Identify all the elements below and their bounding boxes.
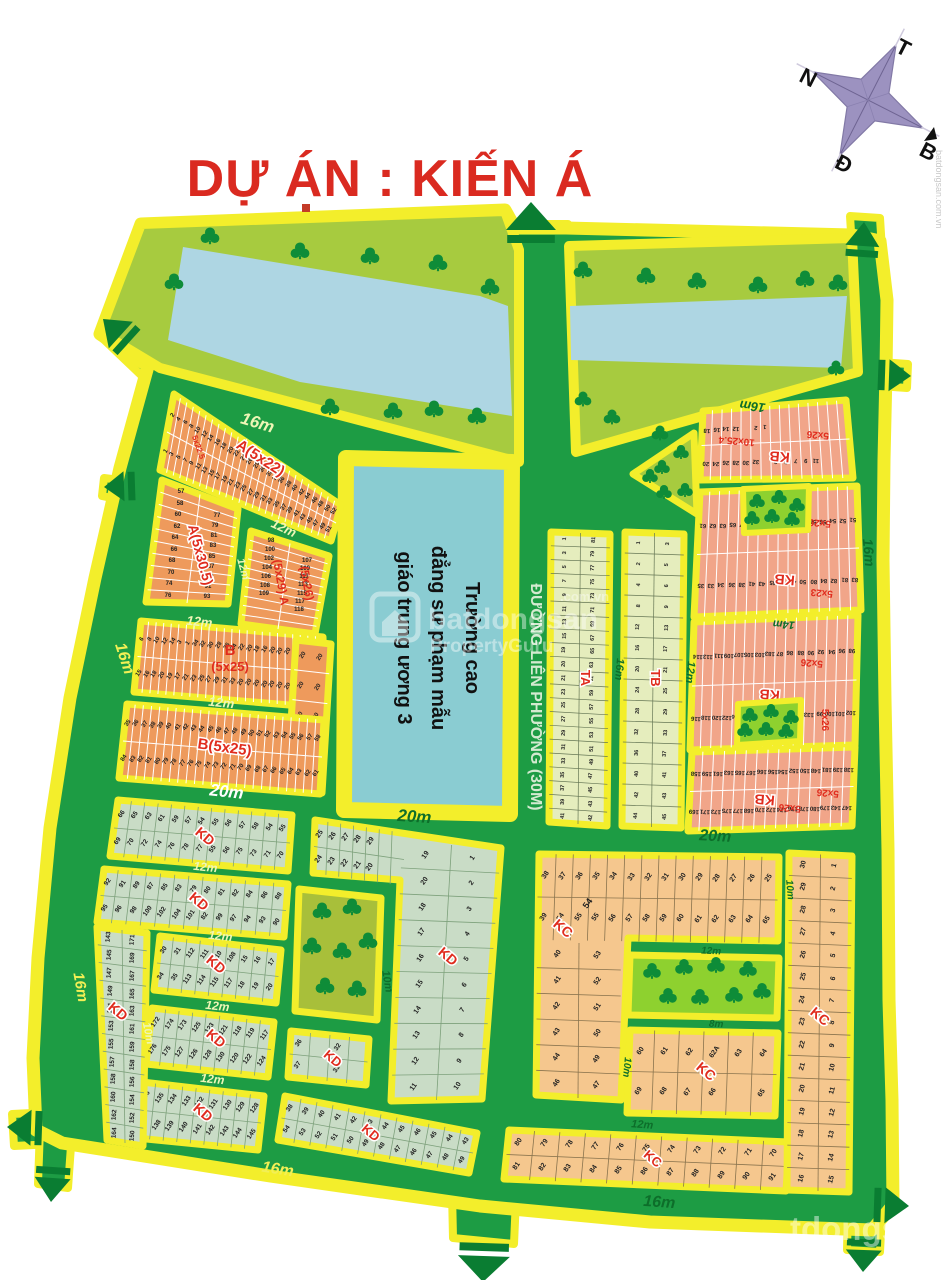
svg-text:33: 33 — [561, 758, 568, 765]
svg-text:156: 156 — [767, 768, 778, 775]
svg-text:16m: 16m — [738, 397, 766, 415]
svg-text:16m: 16m — [860, 538, 878, 567]
svg-text:63: 63 — [589, 662, 596, 669]
svg-text:14: 14 — [722, 425, 730, 432]
svg-text:47: 47 — [588, 773, 595, 780]
svg-text:158: 158 — [110, 1073, 118, 1085]
svg-text:42: 42 — [588, 815, 595, 822]
svg-text:21: 21 — [561, 675, 568, 682]
svg-text:109: 109 — [259, 591, 270, 597]
svg-text:5x23: 5x23 — [810, 586, 834, 599]
svg-text:5x26: 5x26 — [819, 709, 830, 732]
svg-text:152: 152 — [788, 767, 799, 774]
svg-text:39: 39 — [560, 799, 567, 806]
svg-text:32: 32 — [634, 729, 641, 736]
svg-text:17: 17 — [663, 646, 670, 653]
svg-text:106: 106 — [261, 574, 272, 580]
svg-text:149: 149 — [107, 985, 115, 997]
svg-text:81: 81 — [841, 576, 849, 583]
svg-text:25: 25 — [561, 702, 568, 709]
svg-text:8m: 8m — [709, 1019, 724, 1031]
svg-text:173: 173 — [710, 808, 721, 815]
svg-text:55: 55 — [589, 718, 596, 725]
svg-text:2: 2 — [636, 562, 642, 566]
svg-text:153: 153 — [108, 1020, 116, 1032]
svg-text:5x26: 5x26 — [816, 786, 840, 799]
svg-text:28: 28 — [635, 708, 642, 715]
svg-text:70: 70 — [168, 570, 175, 576]
svg-text:150: 150 — [129, 1130, 137, 1142]
svg-text:59: 59 — [589, 690, 596, 697]
svg-text:116: 116 — [690, 715, 701, 722]
svg-text:107: 107 — [302, 558, 313, 564]
svg-text:12m: 12m — [200, 1071, 226, 1087]
svg-text:TA: TA — [578, 670, 593, 687]
svg-text:51: 51 — [589, 746, 596, 753]
svg-text:10m: 10m — [620, 1057, 633, 1078]
svg-text:19: 19 — [561, 647, 568, 654]
svg-text:53: 53 — [589, 732, 596, 739]
svg-text:65: 65 — [590, 648, 597, 655]
svg-text:PropertyGuru: PropertyGuru — [430, 636, 554, 657]
svg-text:tdongs: tdongs — [790, 1210, 900, 1247]
svg-text:43: 43 — [588, 801, 595, 808]
svg-text:13: 13 — [664, 625, 671, 632]
svg-text:7: 7 — [562, 579, 568, 583]
svg-text:93: 93 — [204, 594, 211, 600]
svg-text:25: 25 — [663, 688, 670, 695]
svg-text:8: 8 — [636, 604, 642, 608]
svg-text:75: 75 — [590, 579, 597, 586]
svg-text:16: 16 — [713, 426, 721, 433]
svg-text:34: 34 — [717, 581, 725, 588]
svg-text:36: 36 — [728, 581, 736, 588]
svg-text:27: 27 — [561, 716, 568, 723]
svg-text:35: 35 — [560, 772, 567, 779]
svg-text:12m: 12m — [186, 613, 214, 631]
svg-text:84: 84 — [820, 577, 828, 584]
svg-text:12m: 12m — [683, 661, 697, 684]
svg-text:150: 150 — [799, 767, 810, 774]
svg-text:DỰ ÁN : KIẾN Á: DỰ ÁN : KIẾN Á — [187, 149, 594, 208]
svg-text:66: 66 — [171, 547, 178, 553]
svg-text:41: 41 — [662, 772, 669, 779]
svg-text:139: 139 — [832, 766, 843, 773]
svg-text:60: 60 — [175, 512, 182, 518]
svg-text:147: 147 — [841, 804, 852, 811]
svg-text:80: 80 — [810, 578, 818, 585]
svg-text:37: 37 — [662, 751, 669, 758]
svg-text:20: 20 — [561, 661, 568, 668]
svg-text:20m: 20m — [698, 827, 732, 846]
svg-text:45: 45 — [662, 814, 669, 821]
svg-text:83: 83 — [210, 543, 217, 549]
svg-text:179: 179 — [819, 804, 830, 811]
svg-text:159: 159 — [129, 1041, 137, 1053]
svg-text:63: 63 — [719, 522, 727, 529]
svg-text:152: 152 — [129, 1112, 137, 1124]
svg-text:49: 49 — [589, 759, 596, 766]
svg-text:154: 154 — [129, 1094, 137, 1106]
svg-text:18: 18 — [703, 427, 711, 434]
svg-text:167: 167 — [745, 769, 756, 776]
svg-text:58: 58 — [177, 501, 184, 507]
svg-text:171: 171 — [129, 934, 137, 946]
svg-text:12m: 12m — [208, 928, 234, 944]
svg-text:12m: 12m — [208, 694, 236, 712]
svg-text:62: 62 — [709, 522, 717, 529]
svg-text:98: 98 — [848, 647, 856, 654]
svg-text:57: 57 — [589, 704, 596, 711]
svg-text:86: 86 — [786, 649, 794, 656]
svg-text:168: 168 — [743, 807, 754, 814]
svg-text:114: 114 — [692, 653, 703, 660]
svg-text:10m: 10m — [783, 879, 796, 900]
svg-text:181: 181 — [821, 766, 832, 773]
svg-text:165: 165 — [734, 769, 745, 776]
svg-text:43: 43 — [662, 793, 669, 800]
svg-text:3: 3 — [665, 542, 671, 546]
svg-text:111: 111 — [713, 652, 723, 659]
svg-text:41: 41 — [748, 580, 756, 587]
svg-text:1: 1 — [636, 541, 642, 545]
svg-text:68: 68 — [169, 558, 176, 564]
svg-text:50: 50 — [799, 578, 807, 585]
svg-text:33: 33 — [707, 582, 715, 589]
svg-text:32: 32 — [752, 458, 760, 465]
svg-text:38: 38 — [738, 581, 746, 588]
svg-text:77: 77 — [214, 513, 221, 519]
svg-text:76: 76 — [165, 593, 172, 599]
svg-text:40: 40 — [634, 771, 641, 778]
svg-text:31: 31 — [561, 744, 568, 751]
svg-text:30: 30 — [742, 459, 750, 466]
svg-text:pertyG: pertyG — [800, 1249, 845, 1265]
svg-text:92: 92 — [817, 648, 825, 655]
svg-text:20: 20 — [702, 460, 710, 467]
svg-text:145: 145 — [106, 949, 114, 961]
svg-text:167: 167 — [129, 970, 137, 982]
svg-text:107: 107 — [733, 651, 744, 658]
svg-text:16: 16 — [635, 645, 642, 652]
svg-text:37: 37 — [560, 785, 567, 792]
svg-text:81: 81 — [211, 533, 218, 539]
svg-text:36: 36 — [634, 750, 641, 757]
svg-text:183: 183 — [764, 650, 775, 657]
svg-text:(5x25): (5x25) — [211, 659, 249, 674]
svg-text:5x26: 5x26 — [808, 516, 832, 529]
svg-text:5x26: 5x26 — [800, 656, 824, 669]
svg-text:158: 158 — [129, 1059, 137, 1071]
svg-text:165: 165 — [129, 988, 137, 1000]
svg-text:61: 61 — [699, 522, 707, 529]
svg-text:57: 57 — [178, 489, 185, 495]
svg-text:20: 20 — [635, 666, 642, 673]
svg-text:65: 65 — [729, 521, 737, 528]
svg-text:batdongsan.com.vn: batdongsan.com.vn — [934, 150, 943, 229]
svg-text:162: 162 — [111, 1109, 119, 1121]
svg-text:177: 177 — [732, 807, 743, 814]
svg-text:94: 94 — [828, 648, 836, 655]
svg-text:79: 79 — [590, 551, 597, 558]
svg-text:138: 138 — [843, 766, 854, 773]
svg-text:133: 133 — [803, 711, 814, 718]
svg-text:64: 64 — [172, 535, 179, 541]
svg-text:5: 5 — [664, 563, 670, 567]
svg-text:103: 103 — [754, 651, 765, 658]
svg-text:88: 88 — [797, 649, 805, 656]
svg-text:51: 51 — [849, 516, 857, 523]
svg-text:12m: 12m — [193, 859, 219, 875]
svg-text:159: 159 — [701, 770, 712, 777]
svg-text:41: 41 — [560, 813, 567, 820]
svg-text:20m: 20m — [396, 806, 432, 827]
svg-text:12: 12 — [635, 624, 642, 631]
svg-text:12m: 12m — [701, 945, 722, 957]
svg-text:28: 28 — [732, 459, 740, 466]
svg-text:12m: 12m — [205, 998, 231, 1014]
svg-text:156: 156 — [129, 1076, 137, 1088]
svg-text:109: 109 — [723, 652, 734, 659]
svg-text:102: 102 — [845, 709, 856, 716]
svg-text:29: 29 — [561, 730, 568, 737]
svg-text:20m: 20m — [208, 780, 245, 803]
svg-text:100: 100 — [265, 547, 276, 553]
svg-text:74: 74 — [166, 581, 173, 587]
svg-text:105: 105 — [743, 651, 754, 658]
svg-text:52: 52 — [839, 517, 847, 524]
svg-text:12: 12 — [732, 425, 740, 432]
svg-text:87: 87 — [776, 650, 784, 657]
svg-text:26: 26 — [722, 459, 730, 466]
svg-text:82: 82 — [830, 577, 838, 584]
svg-text:120: 120 — [711, 714, 722, 721]
svg-text:11: 11 — [812, 457, 820, 464]
svg-text:171: 171 — [699, 808, 710, 815]
svg-text:164: 164 — [111, 1127, 119, 1139]
svg-text:77: 77 — [590, 565, 597, 572]
svg-text:79: 79 — [212, 523, 219, 529]
svg-text:175: 175 — [721, 807, 732, 814]
svg-text:118: 118 — [700, 714, 711, 721]
svg-text:154: 154 — [777, 768, 788, 775]
svg-text:108: 108 — [260, 583, 271, 589]
svg-text:43: 43 — [758, 580, 766, 587]
svg-text:160: 160 — [110, 1091, 118, 1103]
svg-text:169: 169 — [688, 808, 699, 815]
svg-text:161: 161 — [129, 1023, 137, 1035]
svg-text:6: 6 — [664, 584, 670, 588]
svg-text:96: 96 — [838, 647, 846, 654]
svg-text:83: 83 — [851, 576, 859, 583]
svg-text:batdongsan: batdongsan — [428, 603, 598, 636]
svg-text:42: 42 — [634, 792, 641, 799]
svg-text:143: 143 — [830, 804, 841, 811]
svg-text:45: 45 — [588, 787, 595, 794]
svg-text:5: 5 — [562, 565, 568, 569]
svg-text:101: 101 — [834, 710, 845, 717]
svg-text:33: 33 — [663, 730, 670, 737]
svg-text:155: 155 — [108, 1038, 116, 1050]
svg-text:81: 81 — [591, 537, 598, 544]
svg-text:143: 143 — [105, 931, 113, 943]
svg-text:24: 24 — [712, 460, 720, 467]
svg-text:113: 113 — [702, 653, 713, 660]
svg-text:TB: TB — [648, 669, 663, 686]
svg-text:12m: 12m — [631, 1118, 654, 1132]
svg-text:16m: 16m — [612, 658, 626, 681]
svg-text:35: 35 — [697, 582, 705, 589]
svg-text:90: 90 — [807, 649, 815, 656]
svg-text:29: 29 — [663, 709, 670, 716]
svg-text:B: B — [225, 642, 236, 659]
svg-text:9: 9 — [664, 605, 670, 609]
svg-text:KB: KB — [769, 448, 791, 466]
svg-text:23: 23 — [561, 689, 568, 696]
svg-text:148: 148 — [810, 767, 821, 774]
svg-text:3: 3 — [562, 551, 568, 555]
svg-text:16m: 16m — [643, 1193, 676, 1212]
svg-text:166: 166 — [756, 768, 767, 775]
svg-text:1: 1 — [562, 537, 568, 541]
svg-text:14m: 14m — [772, 617, 795, 630]
svg-text:158: 158 — [690, 770, 701, 777]
svg-text:118: 118 — [294, 607, 304, 613]
svg-text:98: 98 — [268, 538, 275, 544]
svg-text:157: 157 — [109, 1056, 117, 1068]
svg-text:163: 163 — [723, 769, 734, 776]
svg-text:KB: KB — [754, 791, 776, 809]
svg-text:62: 62 — [174, 524, 181, 530]
svg-text:147: 147 — [106, 967, 114, 979]
svg-text:KB: KB — [774, 571, 796, 589]
svg-text:5x26: 5x26 — [778, 801, 802, 814]
svg-text:122: 122 — [721, 714, 732, 721]
svg-text:169: 169 — [129, 952, 137, 964]
svg-text:.com.vn: .com.vn — [560, 589, 609, 604]
svg-text:161: 161 — [712, 770, 723, 777]
svg-text:5x26: 5x26 — [806, 428, 830, 441]
svg-text:180: 180 — [809, 805, 820, 812]
